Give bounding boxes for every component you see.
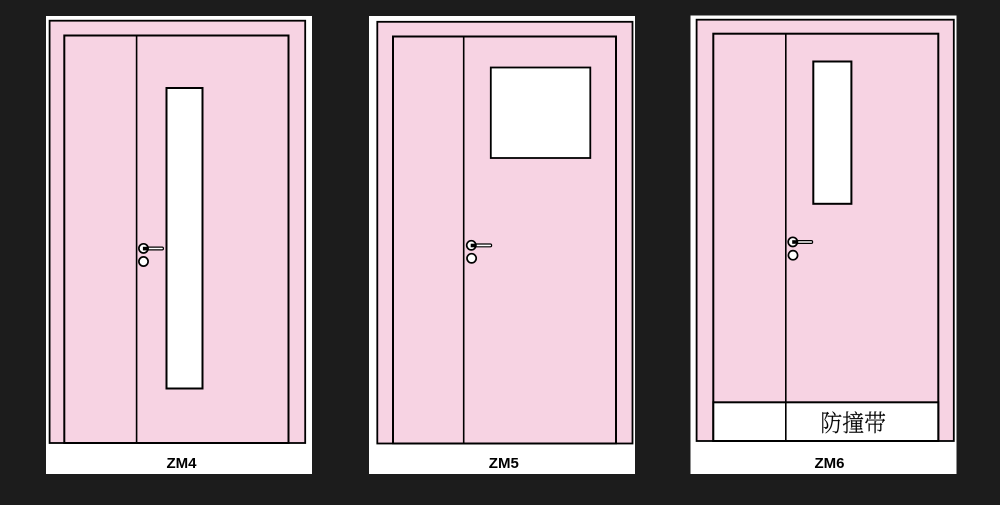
svg-text:ZM5: ZM5 (489, 455, 519, 472)
svg-text:ZM6: ZM6 (815, 455, 845, 472)
svg-text:ZM4: ZM4 (167, 455, 198, 472)
